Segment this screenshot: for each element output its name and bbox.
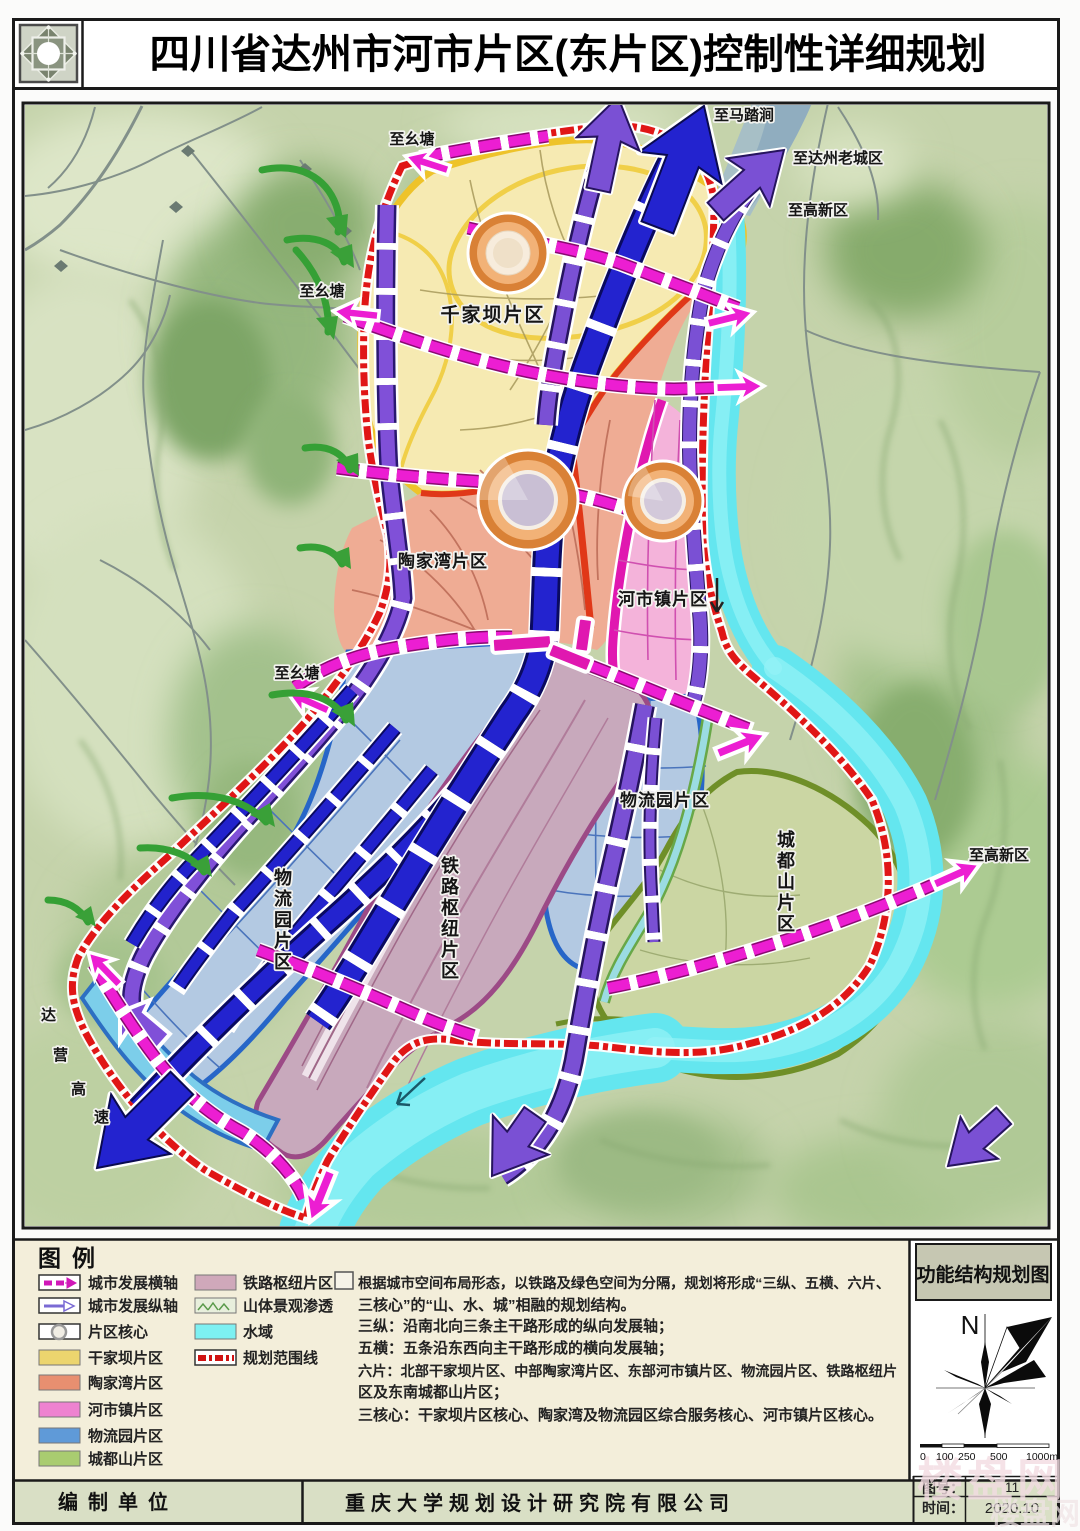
svg-text:干家坝片区: 干家坝片区 <box>88 1349 163 1367</box>
svg-text:速: 速 <box>94 1108 109 1126</box>
svg-text:功能结构规划图: 功能结构规划图 <box>916 1263 1049 1286</box>
svg-text:图例: 图例 <box>38 1245 106 1271</box>
svg-text:城市发展纵轴: 城市发展纵轴 <box>88 1297 178 1315</box>
svg-text:水域: 水域 <box>243 1323 273 1341</box>
svg-text:都: 都 <box>776 851 795 871</box>
svg-text:河市镇片区: 河市镇片区 <box>88 1401 163 1419</box>
svg-text:区: 区 <box>777 914 795 934</box>
svg-text:纽: 纽 <box>441 918 459 939</box>
svg-text:重庆大学规划设计研究院有限公司: 重庆大学规划设计研究院有限公司 <box>345 1491 735 1515</box>
svg-text:达: 达 <box>41 1006 56 1024</box>
svg-text:园: 园 <box>274 910 292 930</box>
svg-text:至高新区: 至高新区 <box>788 201 848 219</box>
svg-text:城都山片区: 城都山片区 <box>88 1450 163 1468</box>
svg-text:五横：五条沿东西向主干路形成的横向发展轴；: 五横：五条沿东西向主干路形成的横向发展轴； <box>358 1339 673 1357</box>
svg-text:至高新区: 至高新区 <box>969 846 1029 864</box>
svg-text:根据城市空间布局形态，以铁路及绿色空间为分隔，规划将形成“三: 根据城市空间布局形态，以铁路及绿色空间为分隔，规划将形成“三纵、五横、六片、 <box>358 1275 890 1292</box>
svg-text:三核心：干家坝片区核心、陶家湾及物流园区综合服务核心、河市镇: 三核心：干家坝片区核心、陶家湾及物流园区综合服务核心、河市镇片区核心。 <box>358 1406 883 1424</box>
svg-text:至达州老城区: 至达州老城区 <box>793 149 883 167</box>
svg-text:区: 区 <box>274 952 292 972</box>
svg-text:区及东南城都山片区；: 区及东南城都山片区； <box>358 1383 508 1401</box>
svg-text:0: 0 <box>920 1451 926 1463</box>
svg-text:100: 100 <box>936 1451 954 1463</box>
svg-text:编制单位: 编制单位 <box>58 1490 178 1514</box>
svg-text:规划范围线: 规划范围线 <box>243 1349 318 1367</box>
svg-text:片: 片 <box>441 939 459 960</box>
svg-text:千家坝片区: 千家坝片区 <box>440 303 545 326</box>
svg-text:三核心”的“山、水、城”相融的规划结构。: 三核心”的“山、水、城”相融的规划结构。 <box>358 1296 636 1314</box>
svg-text:500: 500 <box>990 1451 1008 1463</box>
svg-text:三纵：沿南北向三条主干路形成的纵向发展轴；: 三纵：沿南北向三条主干路形成的纵向发展轴； <box>358 1317 673 1335</box>
svg-text:六片：北部干家坝片区、中部陶家湾片区、东部河市镇片区、物流园: 六片：北部干家坝片区、中部陶家湾片区、东部河市镇片区、物流园片区、铁路枢纽片 <box>358 1363 897 1380</box>
svg-text:高: 高 <box>71 1080 86 1098</box>
svg-text:流: 流 <box>274 888 292 909</box>
svg-text:片: 片 <box>274 930 292 951</box>
svg-text:铁: 铁 <box>441 855 459 876</box>
svg-text:1000m: 1000m <box>1026 1451 1058 1463</box>
svg-text:营: 营 <box>53 1047 68 1064</box>
svg-text:山: 山 <box>777 872 795 892</box>
svg-text:片: 片 <box>777 892 795 913</box>
svg-text:物流园片区: 物流园片区 <box>88 1427 163 1445</box>
svg-text:至幺塘: 至幺塘 <box>299 282 344 300</box>
svg-text:楼盘网: 楼盘网 <box>990 1497 1080 1531</box>
svg-text:河市镇片区: 河市镇片区 <box>618 589 708 609</box>
svg-text:城市发展横轴: 城市发展横轴 <box>88 1274 178 1292</box>
svg-text:物流园片区: 物流园片区 <box>620 790 710 810</box>
svg-text:陶家湾片区: 陶家湾片区 <box>398 551 488 571</box>
svg-text:城: 城 <box>777 829 795 850</box>
svg-text:区: 区 <box>441 961 459 981</box>
svg-text:四川省达州市河市片区(东片区)控制性详细规划: 四川省达州市河市片区(东片区)控制性详细规划 <box>150 31 987 77</box>
svg-text:至幺塘: 至幺塘 <box>274 664 319 682</box>
svg-text:枢: 枢 <box>441 898 459 918</box>
svg-text:N: N <box>961 1310 980 1340</box>
svg-text:物: 物 <box>274 867 292 888</box>
svg-text:路: 路 <box>441 876 460 897</box>
svg-text:铁路枢纽片区: 铁路枢纽片区 <box>243 1274 333 1292</box>
svg-text:250: 250 <box>958 1451 976 1463</box>
svg-text:至幺塘: 至幺塘 <box>389 130 434 148</box>
svg-text:山体景观渗透: 山体景观渗透 <box>243 1297 334 1315</box>
svg-text:片区核心: 片区核心 <box>88 1323 148 1341</box>
svg-text:至马踏涧: 至马踏涧 <box>714 106 774 124</box>
svg-text:陶家湾片区: 陶家湾片区 <box>88 1374 163 1392</box>
